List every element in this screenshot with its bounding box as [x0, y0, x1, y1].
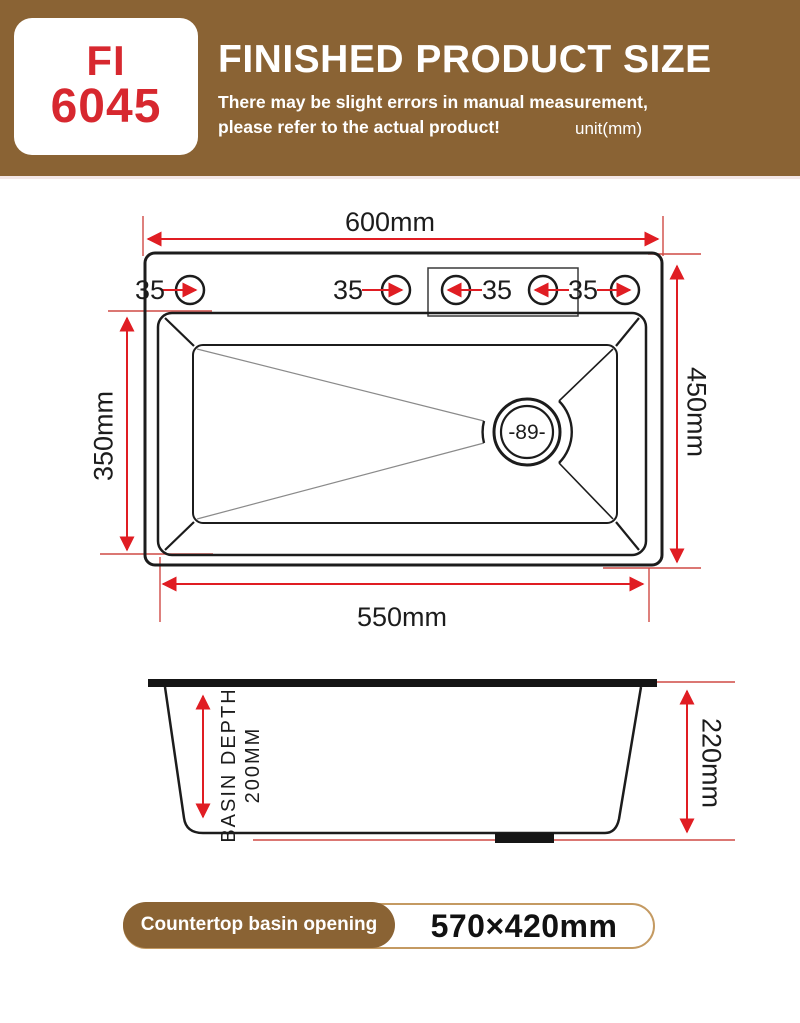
slope-line-bl [197, 443, 484, 519]
drain-assembly: -89- [487, 392, 567, 472]
drain-stub [495, 833, 554, 843]
slope-line-tl [197, 349, 484, 421]
header-banner: FI 6045 FINISHED PRODUCT SIZE There may … [0, 0, 800, 176]
overall-width-label: 600mm [345, 207, 435, 237]
top-view-drawing: -89- 35 35 35 35 [88, 207, 711, 632]
hole-diameter-label-4: 35 [568, 275, 598, 305]
overall-height-label: 220mm [697, 718, 727, 808]
slope-line-br [559, 463, 613, 519]
disclaimer-line1: There may be slight errors in manual mea… [218, 92, 648, 113]
countertop-opening-callout: Countertop basin opening 570×420mm [123, 903, 655, 949]
product-size-sheet: FI 6045 FINISHED PRODUCT SIZE There may … [0, 0, 800, 1023]
hole-diameter-label-1: 35 [135, 275, 165, 305]
countertop-rim-bar [148, 679, 657, 687]
basin-depth-label-line1: BASIN DEPTH [218, 687, 240, 842]
corner-line-tr [616, 318, 639, 346]
model-code-line2: 6045 [51, 82, 162, 132]
countertop-opening-value: 570×420mm [395, 908, 653, 945]
unit-note: unit(mm) [575, 119, 642, 139]
corner-line-bl [165, 522, 194, 550]
model-code-line1: FI [86, 40, 125, 82]
overall-depth-label: 450mm [682, 367, 712, 457]
slope-line-tr [559, 349, 613, 401]
basin-depth-label-line2: 200MM [242, 727, 264, 804]
page-title: FINISHED PRODUCT SIZE [218, 38, 793, 82]
drain-diameter-label: -89- [508, 421, 545, 444]
side-view-drawing: BASIN DEPTH 200MM 220mm [148, 679, 735, 843]
hole-diameter-label-2: 35 [333, 275, 363, 305]
corner-line-tl [165, 318, 194, 346]
corner-line-br [616, 522, 639, 550]
disclaimer-line2: please refer to the actual product! [218, 117, 500, 138]
basin-corner-lines [165, 318, 639, 550]
sink-technical-drawing: -89- 35 35 35 35 [0, 176, 800, 1023]
basin-length-label: 550mm [357, 602, 447, 632]
countertop-opening-label: Countertop basin opening [123, 902, 395, 948]
drain-neck-left [483, 421, 484, 443]
basin-width-label: 350mm [88, 391, 118, 481]
model-badge: FI 6045 [14, 18, 198, 155]
hole-diameter-label-3: 35 [482, 275, 512, 305]
